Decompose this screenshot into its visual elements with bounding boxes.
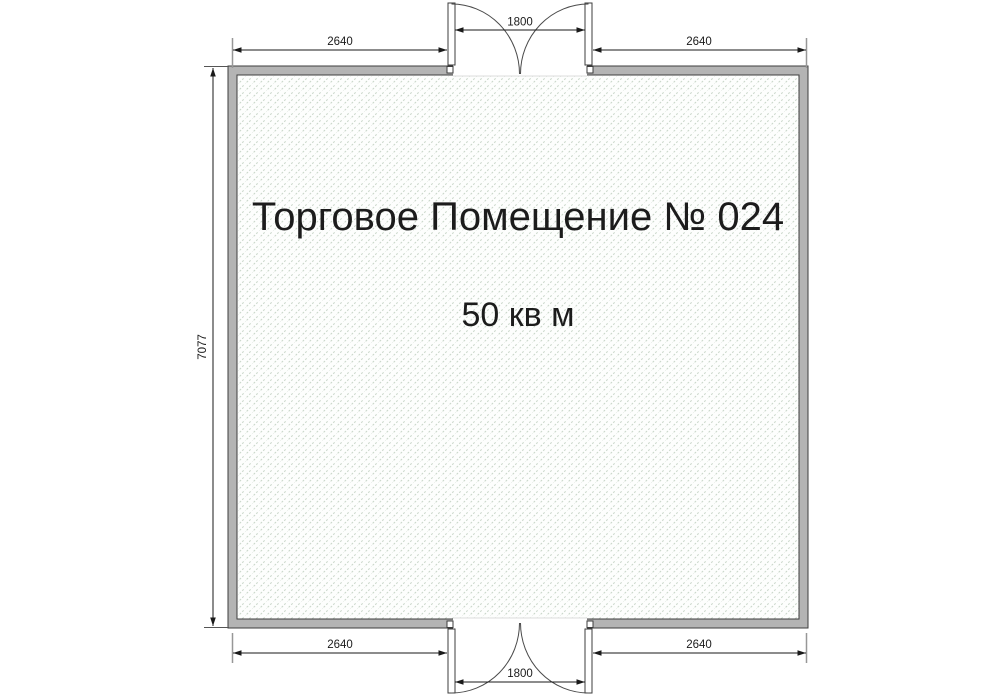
dim-label-top-door: 1800 — [507, 17, 533, 29]
room-area: 50 кв м — [461, 296, 574, 334]
room-title: Торговое Помещение № 024 — [252, 195, 784, 239]
top-door-right-leaf — [585, 3, 592, 65]
floorplan-drawing: 2640 2640 1800 7077 2640 2640 1800 Торго… — [0, 0, 1000, 700]
floorplan-page: 2640 2640 1800 7077 2640 2640 1800 Торго… — [0, 0, 1000, 700]
top-door-opening — [453, 64, 587, 77]
top-door-left-swing-arc — [452, 4, 520, 74]
bottom-door-right-jamb — [587, 621, 593, 628]
dim-label-bottom-door: 1800 — [507, 668, 533, 680]
bottom-door-left-jamb — [447, 621, 453, 628]
top-door-right-jamb — [587, 67, 593, 74]
dim-label-left-height: 7077 — [197, 334, 209, 360]
top-door-left-leaf — [448, 3, 455, 65]
dim-label-top-left: 2640 — [327, 36, 353, 48]
bottom-door-left-leaf — [448, 629, 455, 693]
top-door-left-jamb — [447, 67, 453, 74]
dim-label-top-right: 2640 — [686, 36, 712, 48]
dim-label-bottom-right: 2640 — [686, 639, 712, 651]
bottom-door-opening — [453, 618, 587, 631]
top-door-right-swing-arc — [521, 4, 589, 74]
dim-label-bottom-left: 2640 — [327, 639, 353, 651]
bottom-door-right-leaf — [585, 629, 592, 693]
room-floor-hatch — [237, 75, 799, 619]
